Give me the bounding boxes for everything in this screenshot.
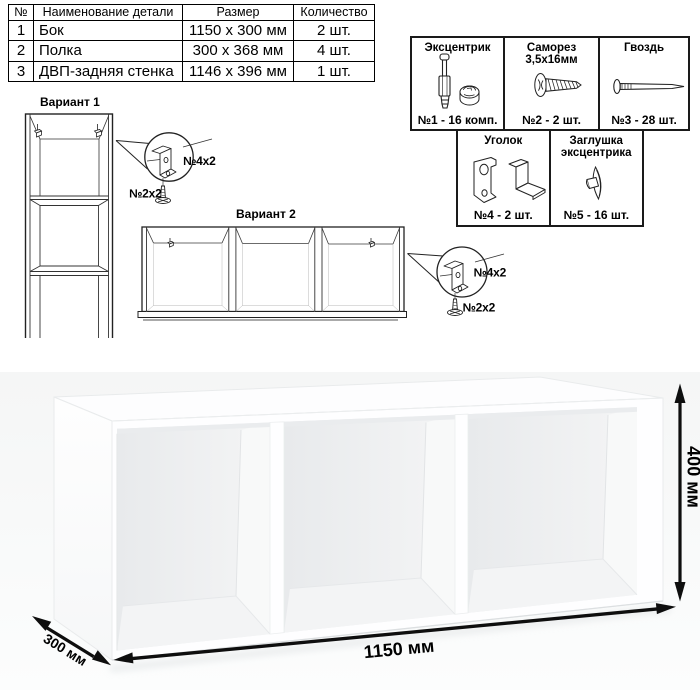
svg-text:Вариант 2: Вариант 2 xyxy=(236,207,296,221)
svg-text:№2х2: №2х2 xyxy=(129,187,162,201)
svg-text:№4х2: №4х2 xyxy=(183,154,216,168)
svg-text:400 мм: 400 мм xyxy=(684,446,700,508)
svg-text:Вариант 1: Вариант 1 xyxy=(40,95,100,109)
svg-text:№2х2: №2х2 xyxy=(463,301,496,315)
svg-text:№4х2: №4х2 xyxy=(474,266,507,280)
